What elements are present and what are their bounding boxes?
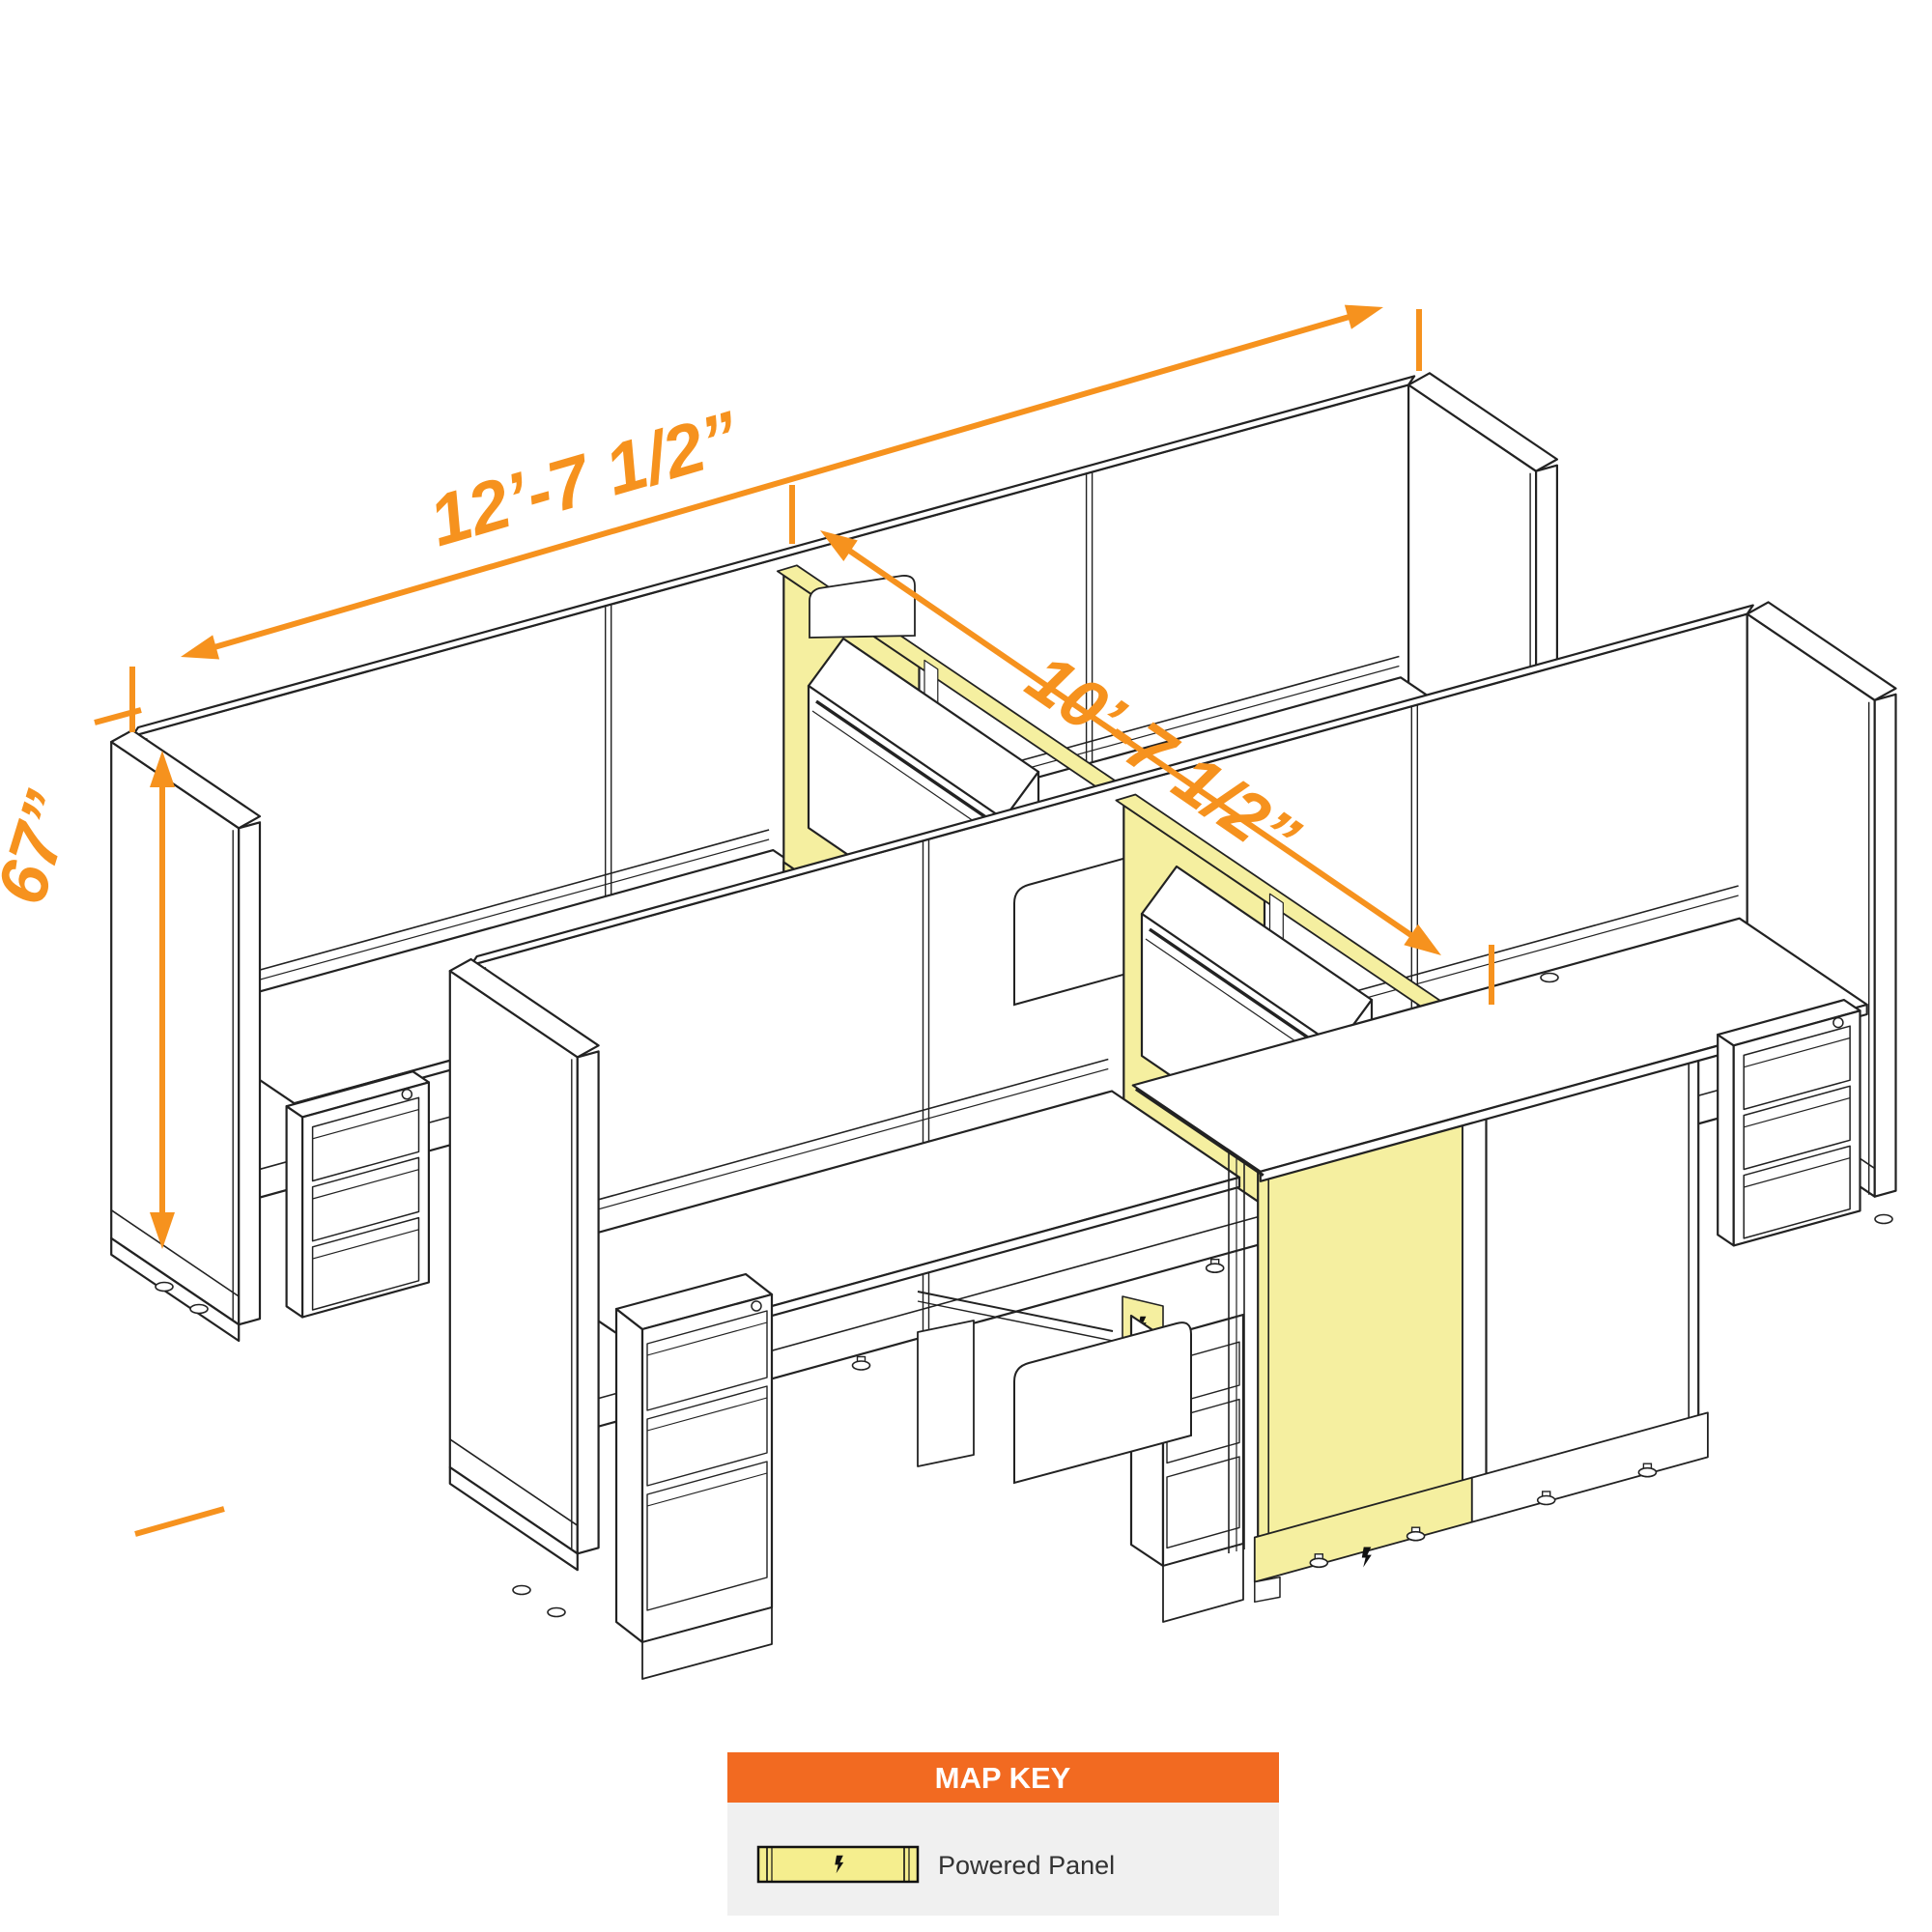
svg-text:MAP KEY: MAP KEY: [935, 1761, 1071, 1795]
svg-text:Powered Panel: Powered Panel: [938, 1851, 1115, 1880]
